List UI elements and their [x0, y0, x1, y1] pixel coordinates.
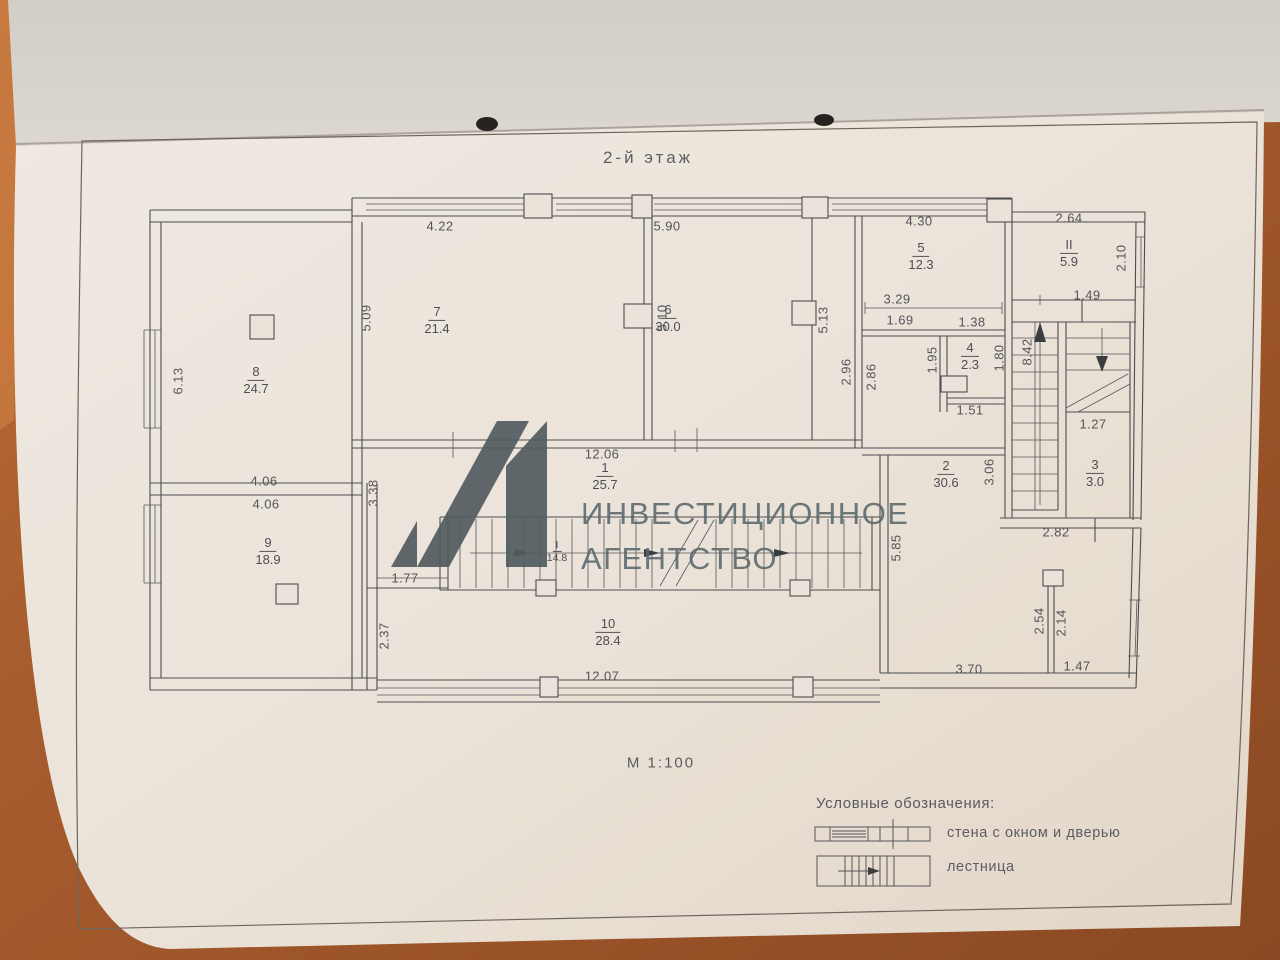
- paper-sheet: [14, 112, 1264, 949]
- photo-of-floor-plan: 2-й этаж М 1:100 ИНВЕСТИЦИОННОЕ АГЕНТСТВ…: [0, 0, 1280, 960]
- binder-dot: [476, 117, 498, 131]
- floor-plan-drawing: [0, 0, 1280, 960]
- binder-dot: [814, 114, 834, 126]
